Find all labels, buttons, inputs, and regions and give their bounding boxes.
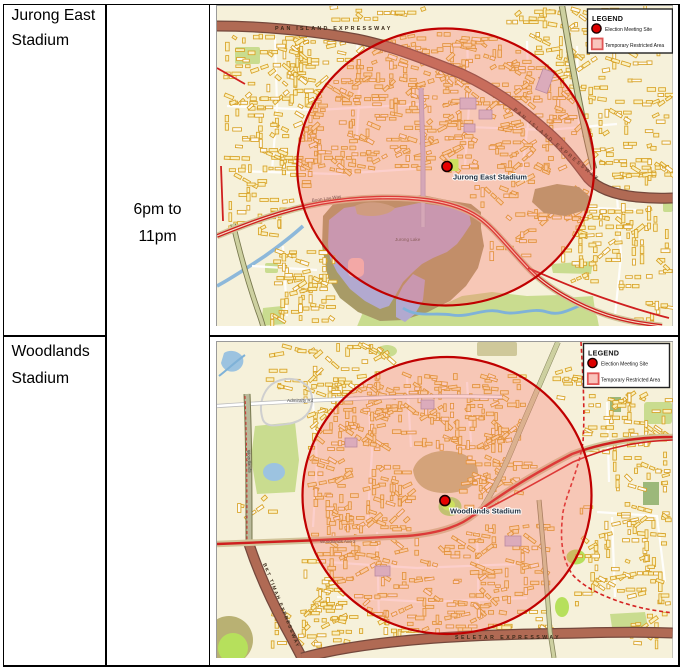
svg-text:Temporary Restricted Area: Temporary Restricted Area [605,43,664,49]
svg-text:SELETAR EXPRESSWAY: SELETAR EXPRESSWAY [455,635,561,641]
svg-text:Admiralty Rd: Admiralty Rd [287,398,314,403]
svg-text:PAN ISLAND EXPRESSWAY: PAN ISLAND EXPRESSWAY [275,26,393,32]
svg-text:LEGEND: LEGEND [592,14,623,23]
svg-text:Election Meeting Site: Election Meeting Site [601,361,648,367]
svg-text:Temporary Restricted Area: Temporary Restricted Area [601,377,660,383]
svg-text:Jurong East Stadium: Jurong East Stadium [453,172,527,181]
svg-text:Woodlands Stadium: Woodlands Stadium [450,506,521,515]
svg-text:LEGEND: LEGEND [588,348,619,357]
svg-text:Election Meeting Site: Election Meeting Site [605,27,652,33]
